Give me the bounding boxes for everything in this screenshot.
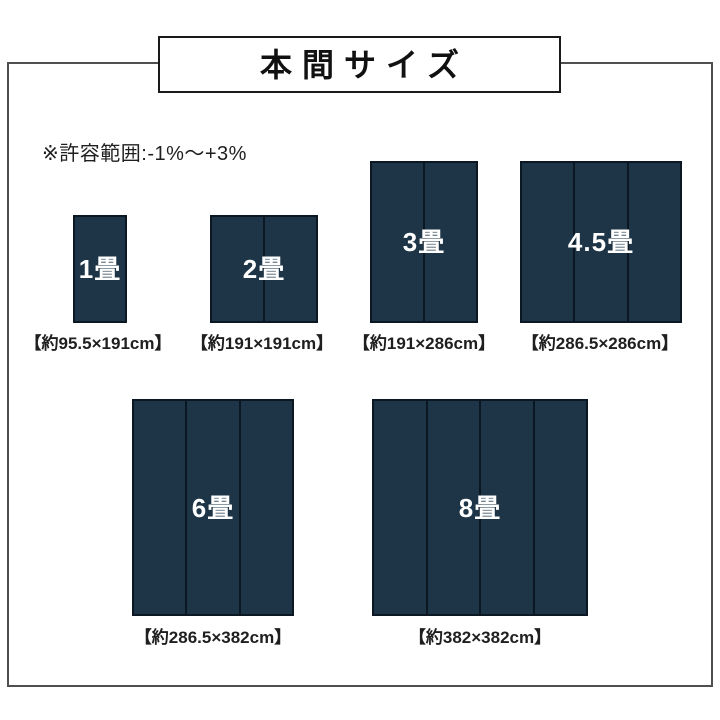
size-chart-page: 本間サイズ ※許容範囲:-1%〜+3% 1畳 【約95.5×191cm】 2畳 … xyxy=(0,0,720,720)
dimension-caption: 【約286.5×382cm】 xyxy=(103,628,323,648)
tolerance-note: ※許容範囲:-1%〜+3% xyxy=(42,137,247,166)
tatami-size-label: 3畳 xyxy=(372,163,476,321)
tatami-size-label: 1畳 xyxy=(75,217,125,321)
title-box: 本間サイズ xyxy=(158,36,561,93)
tatami-size-label: 6畳 xyxy=(134,401,292,614)
tatami-size-label: 4.5畳 xyxy=(522,163,680,321)
tatami-size-label: 2畳 xyxy=(212,217,316,321)
tatami-mat-8jo: 8畳 xyxy=(372,399,588,616)
dimension-caption: 【約286.5×286cm】 xyxy=(490,334,710,354)
tatami-size-label: 8畳 xyxy=(374,401,586,614)
tatami-mat-6jo: 6畳 xyxy=(132,399,294,616)
dimension-caption: 【約382×382cm】 xyxy=(370,628,590,648)
tatami-mat-2jo: 2畳 xyxy=(210,215,318,323)
tatami-mat-45jo: 4.5畳 xyxy=(520,161,682,323)
tatami-mat-1jo: 1畳 xyxy=(73,215,127,323)
tatami-mat-3jo: 3畳 xyxy=(370,161,478,323)
page-title: 本間サイズ xyxy=(250,49,469,81)
